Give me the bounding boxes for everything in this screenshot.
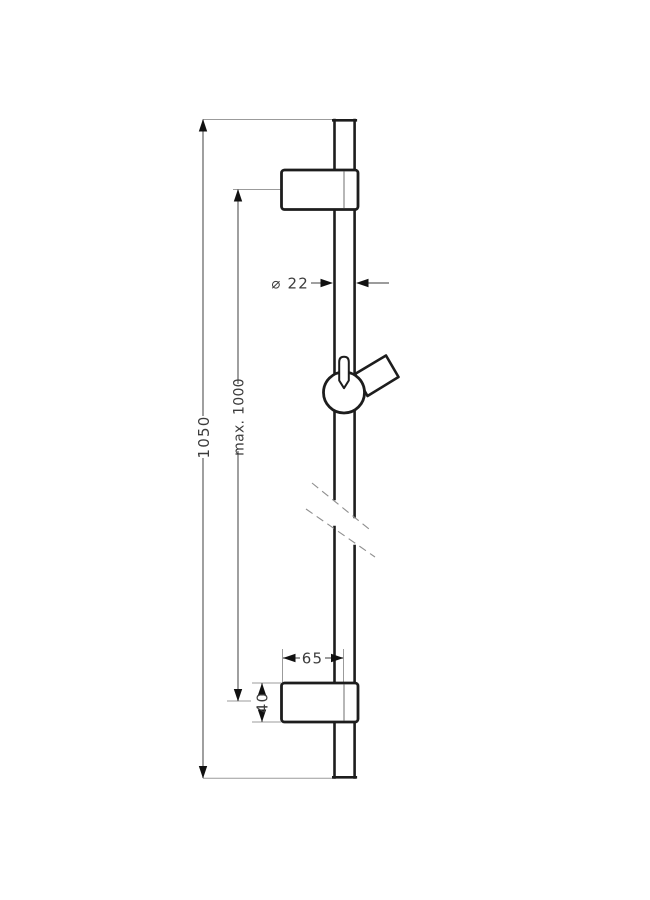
arrow-down-icon <box>199 766 207 779</box>
arrow-right-icon <box>331 654 344 662</box>
wall-mount-top <box>282 170 359 210</box>
dimension-40-label: 40 <box>254 692 272 714</box>
wall-mount-top-body <box>282 170 359 210</box>
extension-lines <box>203 120 344 779</box>
dimension-max-1000: max. 1000 <box>232 189 248 702</box>
shower-bar <box>333 120 356 778</box>
dimension-diameter: ⌀ 22 <box>271 275 389 293</box>
arrow-right-icon <box>321 279 334 287</box>
wall-mount-bottom-body <box>282 683 359 722</box>
bar-break-lines <box>306 483 375 557</box>
dimension-max-1000-label: max. 1000 <box>232 378 248 456</box>
dimension-40: 40 <box>254 683 272 722</box>
drawing-canvas: 1050 max. 1000 ⌀ 22 65 40 <box>0 0 650 900</box>
slider-knob <box>339 357 349 388</box>
arrow-up-icon <box>234 189 242 202</box>
break-line-lower <box>306 509 375 557</box>
dimension-65-label: 65 <box>302 650 324 668</box>
technical-drawing: 1050 max. 1000 ⌀ 22 65 40 <box>0 0 650 900</box>
dimension-1050: 1050 <box>195 119 213 779</box>
arrow-left-icon <box>283 654 296 662</box>
arrow-left-icon <box>356 279 369 287</box>
arrow-up-icon <box>199 119 207 132</box>
break-line-upper <box>312 483 369 529</box>
arrow-down-icon <box>234 689 242 702</box>
dimension-diameter-label: ⌀ 22 <box>271 275 309 293</box>
dimension-1050-label: 1050 <box>195 416 213 459</box>
wall-mount-bottom <box>282 683 359 722</box>
